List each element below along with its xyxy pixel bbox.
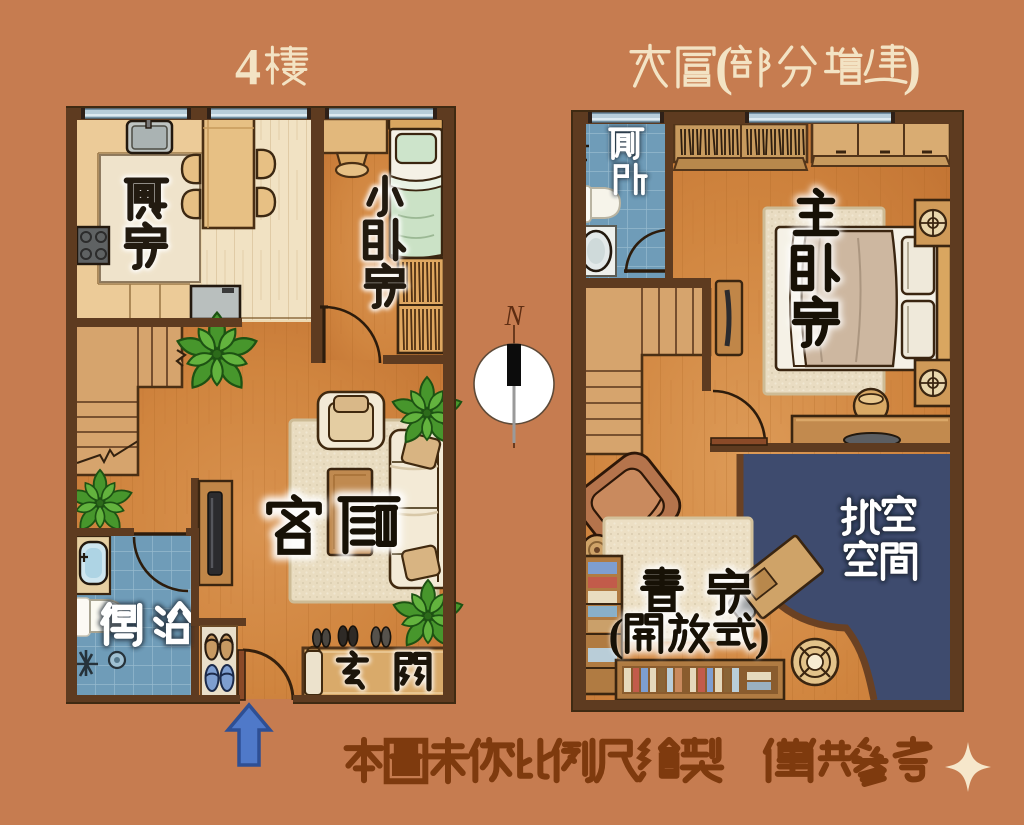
svg-text:N: N bbox=[504, 301, 525, 332]
svg-text:(: ( bbox=[715, 36, 733, 96]
svg-text:(: ( bbox=[608, 609, 623, 660]
svg-text:): ) bbox=[754, 609, 769, 660]
svg-text:4: 4 bbox=[235, 39, 261, 96]
svg-text:): ) bbox=[903, 36, 921, 96]
